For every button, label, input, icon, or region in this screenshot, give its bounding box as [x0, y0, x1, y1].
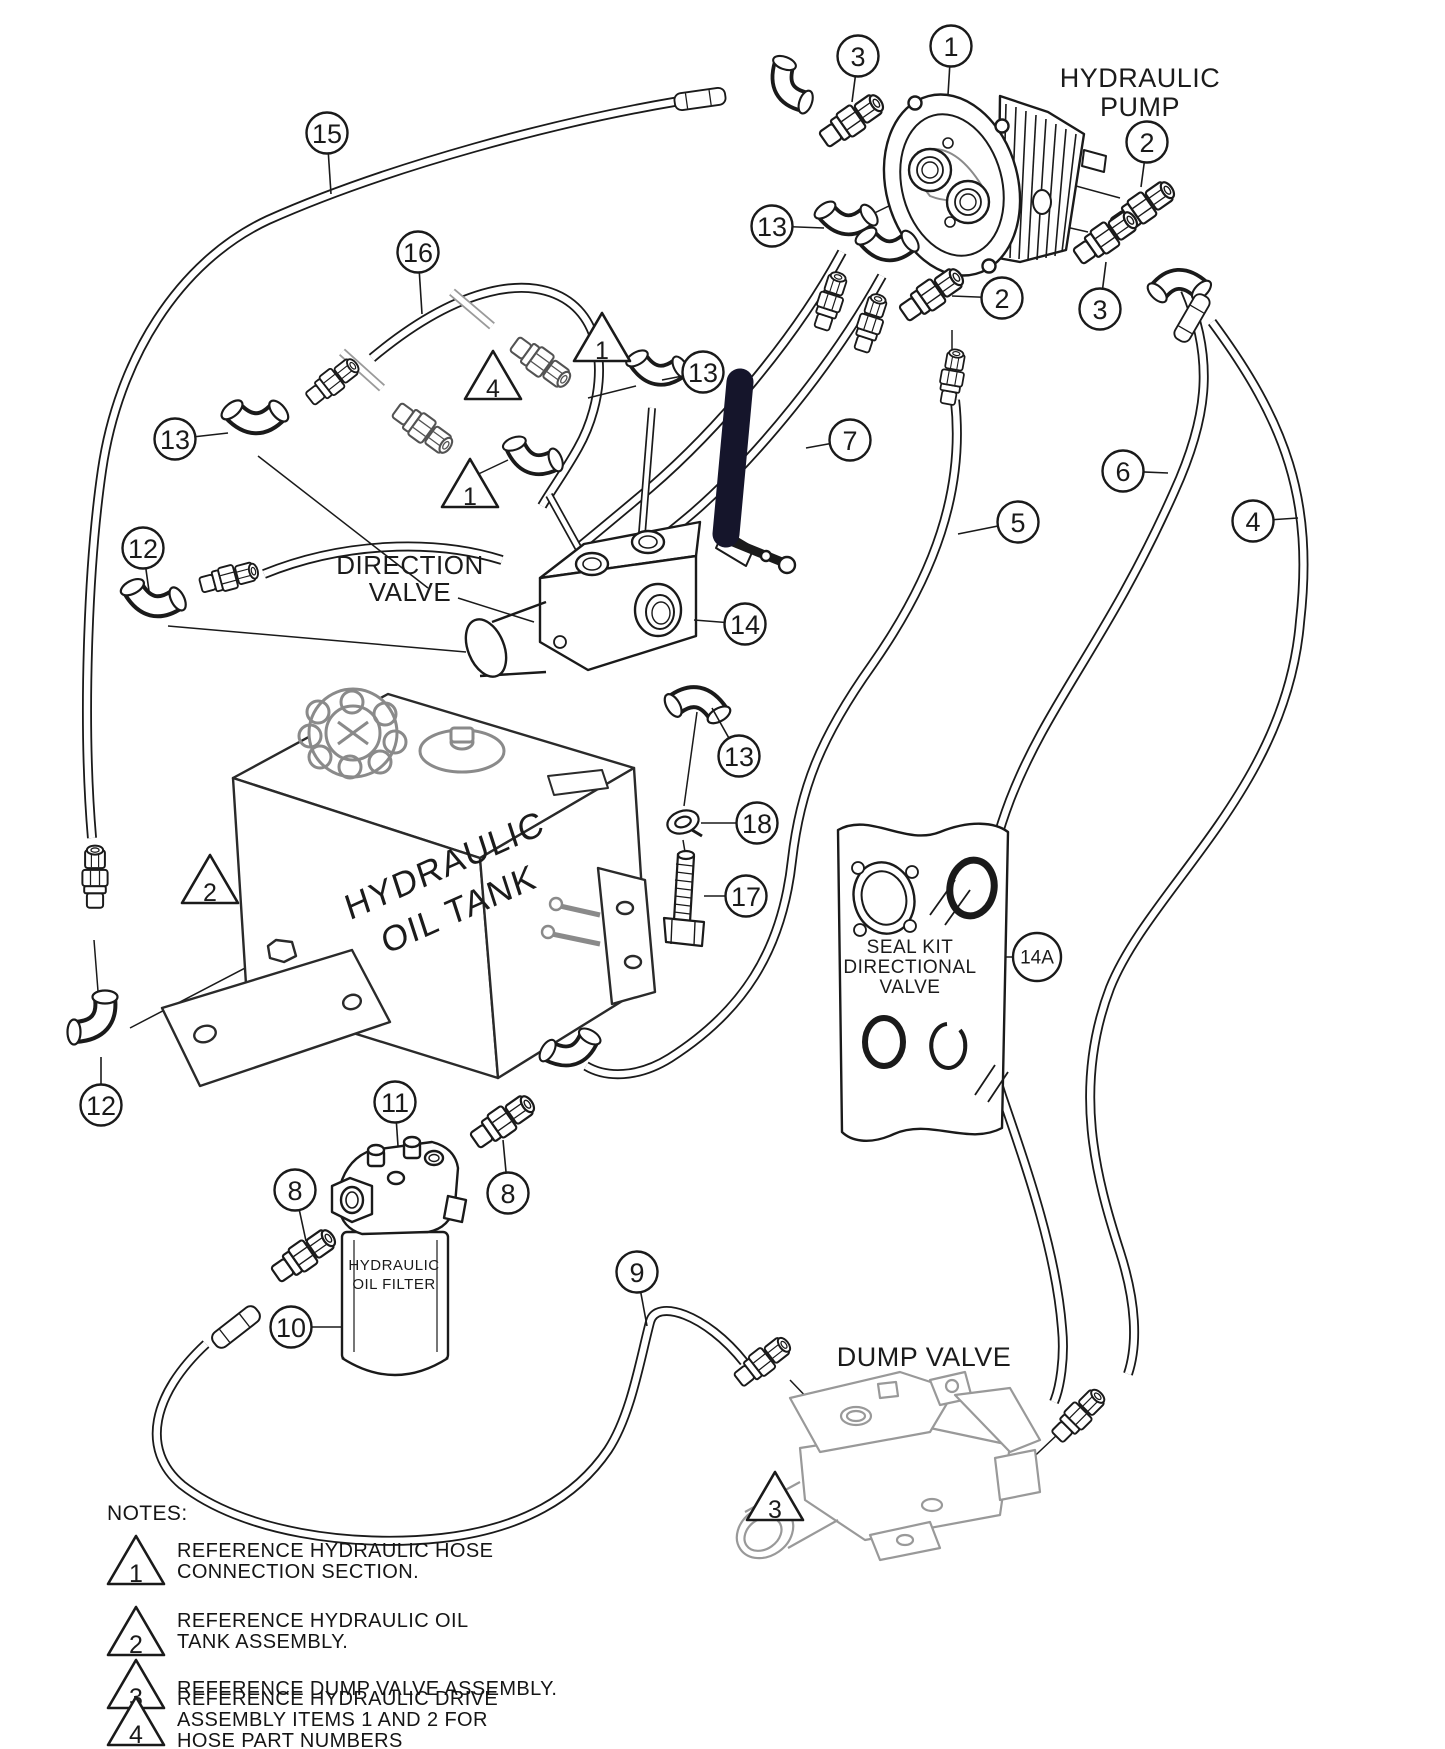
elbow-fitting — [759, 53, 823, 115]
callout-number: 9 — [629, 1258, 644, 1288]
callout-number: 2 — [1139, 128, 1154, 158]
callout-number: 10 — [276, 1313, 306, 1343]
callout-number: 13 — [688, 358, 718, 388]
label-line: DIRECTIONAL — [843, 958, 976, 978]
note-4-line-3: HOSE PART NUMBERS — [177, 1730, 403, 1749]
warning-triangle-number: 4 — [486, 375, 500, 403]
hose-sleeve — [209, 1303, 263, 1350]
component-label-seal-kit: SEAL KITDIRECTIONALVALVE — [843, 938, 976, 998]
elbow-fitting-13 — [624, 333, 692, 400]
component-label-direction-valve: DIRECTIONVALVE — [336, 552, 484, 606]
elbow-fitting-13 — [661, 671, 733, 741]
callout-number: 12 — [86, 1091, 116, 1121]
hose-nut — [198, 559, 261, 597]
callout-12: 12 — [81, 1057, 122, 1126]
warning-triangle-number: 2 — [129, 1631, 143, 1659]
callout-4: 4 — [1233, 501, 1299, 542]
diagram-canvas: 3123132131516131214756413181714A12118810… — [0, 0, 1445, 1749]
label-line: VALVE — [336, 579, 484, 606]
callout-8: 8 — [488, 1140, 529, 1214]
component-label-pump: HYDRAULICPUMP — [1060, 64, 1221, 122]
component-label-oil-filter: HYDRAULICOIL FILTER — [348, 1256, 439, 1294]
elbow-fitting-12 — [68, 991, 118, 1045]
callout-number: 2 — [994, 284, 1009, 314]
tank-cap — [420, 728, 504, 772]
warning-triangle-number: 1 — [463, 483, 477, 511]
warning-triangle-number: 2 — [203, 879, 217, 907]
callout-3: 3 — [1080, 262, 1121, 330]
callout-14A: 14A — [1006, 933, 1061, 981]
callout-7: 7 — [806, 420, 871, 461]
dump-valve — [727, 1372, 1040, 1569]
warning-triangle-2: 2 — [182, 855, 238, 907]
warning-triangle-number: 1 — [595, 337, 609, 365]
hose-nut — [82, 846, 107, 908]
callout-18: 18 — [701, 803, 778, 844]
callout-2: 2 — [1127, 122, 1168, 188]
note-4-line-1: REFERENCE HYDRAULIC DRIVE — [177, 1688, 498, 1711]
mounting-bolt — [664, 807, 704, 946]
callout-number: 11 — [381, 1088, 409, 1118]
callout-number: 4 — [1245, 507, 1260, 537]
callout-number: 13 — [160, 425, 190, 455]
hose-sleeve — [1172, 292, 1212, 345]
callout-number: 8 — [287, 1176, 302, 1206]
callout-number: 8 — [500, 1179, 515, 1209]
callout-6: 6 — [1103, 451, 1169, 492]
diagram-line-art: 3123132131516131214756413181714A12118810… — [0, 0, 1445, 1749]
callout-14: 14 — [694, 604, 766, 645]
callout-13: 13 — [155, 419, 229, 460]
callout-number: 14A — [1020, 948, 1054, 969]
note-1-line-1: REFERENCE HYDRAULIC HOSE — [177, 1540, 493, 1563]
callout-3: 3 — [838, 36, 879, 103]
hose-6 — [980, 290, 1204, 1402]
elbow-fitting-13 — [218, 378, 292, 451]
label-line: HYDRAULIC — [348, 1256, 439, 1275]
callout-16: 16 — [398, 232, 439, 315]
label-line: DIRECTION — [336, 552, 484, 579]
note-triangle-1: 1 — [108, 1536, 164, 1588]
hose-nut — [936, 348, 968, 406]
label-line: SEAL KIT — [843, 938, 976, 958]
callout-number: 14 — [730, 610, 760, 640]
label-line: DUMP VALVE — [837, 1343, 1012, 1371]
valve-handle — [716, 382, 795, 573]
warning-triangle-number: 4 — [129, 1721, 143, 1749]
callout-number: 12 — [128, 534, 158, 564]
callout-13: 13 — [752, 206, 825, 247]
filter-canister — [342, 1232, 448, 1360]
straight-fitting-3 — [1070, 206, 1143, 269]
seal-kit-gasket — [846, 855, 923, 940]
callout-number: 13 — [757, 212, 787, 242]
callout-number: 3 — [1092, 295, 1107, 325]
warning-triangle-3: 3 — [747, 1472, 803, 1524]
hose-9 — [157, 1311, 744, 1541]
callout-8: 8 — [275, 1170, 316, 1242]
warning-triangle-4: 4 — [465, 351, 521, 403]
ghost-hose-stubs — [342, 292, 492, 388]
warning-triangle-1: 1 — [442, 459, 498, 511]
callout-1: 1 — [931, 26, 972, 96]
straight-fitting-2 — [896, 263, 969, 326]
callout-15: 15 — [307, 113, 348, 195]
callout-number: 3 — [850, 42, 865, 72]
callout-number: 1 — [943, 32, 958, 62]
callout-5: 5 — [958, 502, 1039, 543]
label-line: VALVE — [843, 978, 976, 998]
warning-triangle-number: 1 — [129, 1560, 143, 1588]
callout-number: 15 — [312, 119, 342, 149]
callout-number: 16 — [403, 238, 433, 268]
notes-heading: NOTES: — [107, 1502, 188, 1526]
note-4-line-2: ASSEMBLY ITEMS 1 AND 2 FOR — [177, 1709, 488, 1732]
callout-number: 7 — [842, 426, 857, 456]
note-triangle-2: 2 — [108, 1607, 164, 1659]
callout-number: 17 — [731, 882, 761, 912]
callout-17: 17 — [704, 876, 767, 917]
callout-number: 5 — [1010, 508, 1025, 538]
bolt-head — [664, 918, 704, 946]
warning-triangle-number: 3 — [768, 1496, 782, 1524]
label-line: OIL FILTER — [348, 1275, 439, 1294]
callout-10: 10 — [271, 1307, 343, 1348]
note-1-line-2: CONNECTION SECTION. — [177, 1561, 419, 1584]
elbow-fitting-12 — [118, 563, 189, 632]
component-label-dump-valve: DUMP VALVE — [837, 1343, 1012, 1371]
label-line: HYDRAULIC — [1060, 64, 1221, 93]
note-2-line-1: REFERENCE HYDRAULIC OIL — [177, 1610, 468, 1633]
ghost-fitting-4 — [389, 399, 458, 459]
note-2-line-2: TANK ASSEMBLY. — [177, 1631, 348, 1654]
hose-sleeve — [674, 87, 727, 111]
callout-number: 18 — [742, 809, 772, 839]
label-line: PUMP — [1060, 93, 1221, 122]
hose-nut — [303, 354, 364, 409]
callout-number: 13 — [724, 742, 754, 772]
bracket-nut — [268, 940, 296, 962]
callout-number: 6 — [1115, 457, 1130, 487]
